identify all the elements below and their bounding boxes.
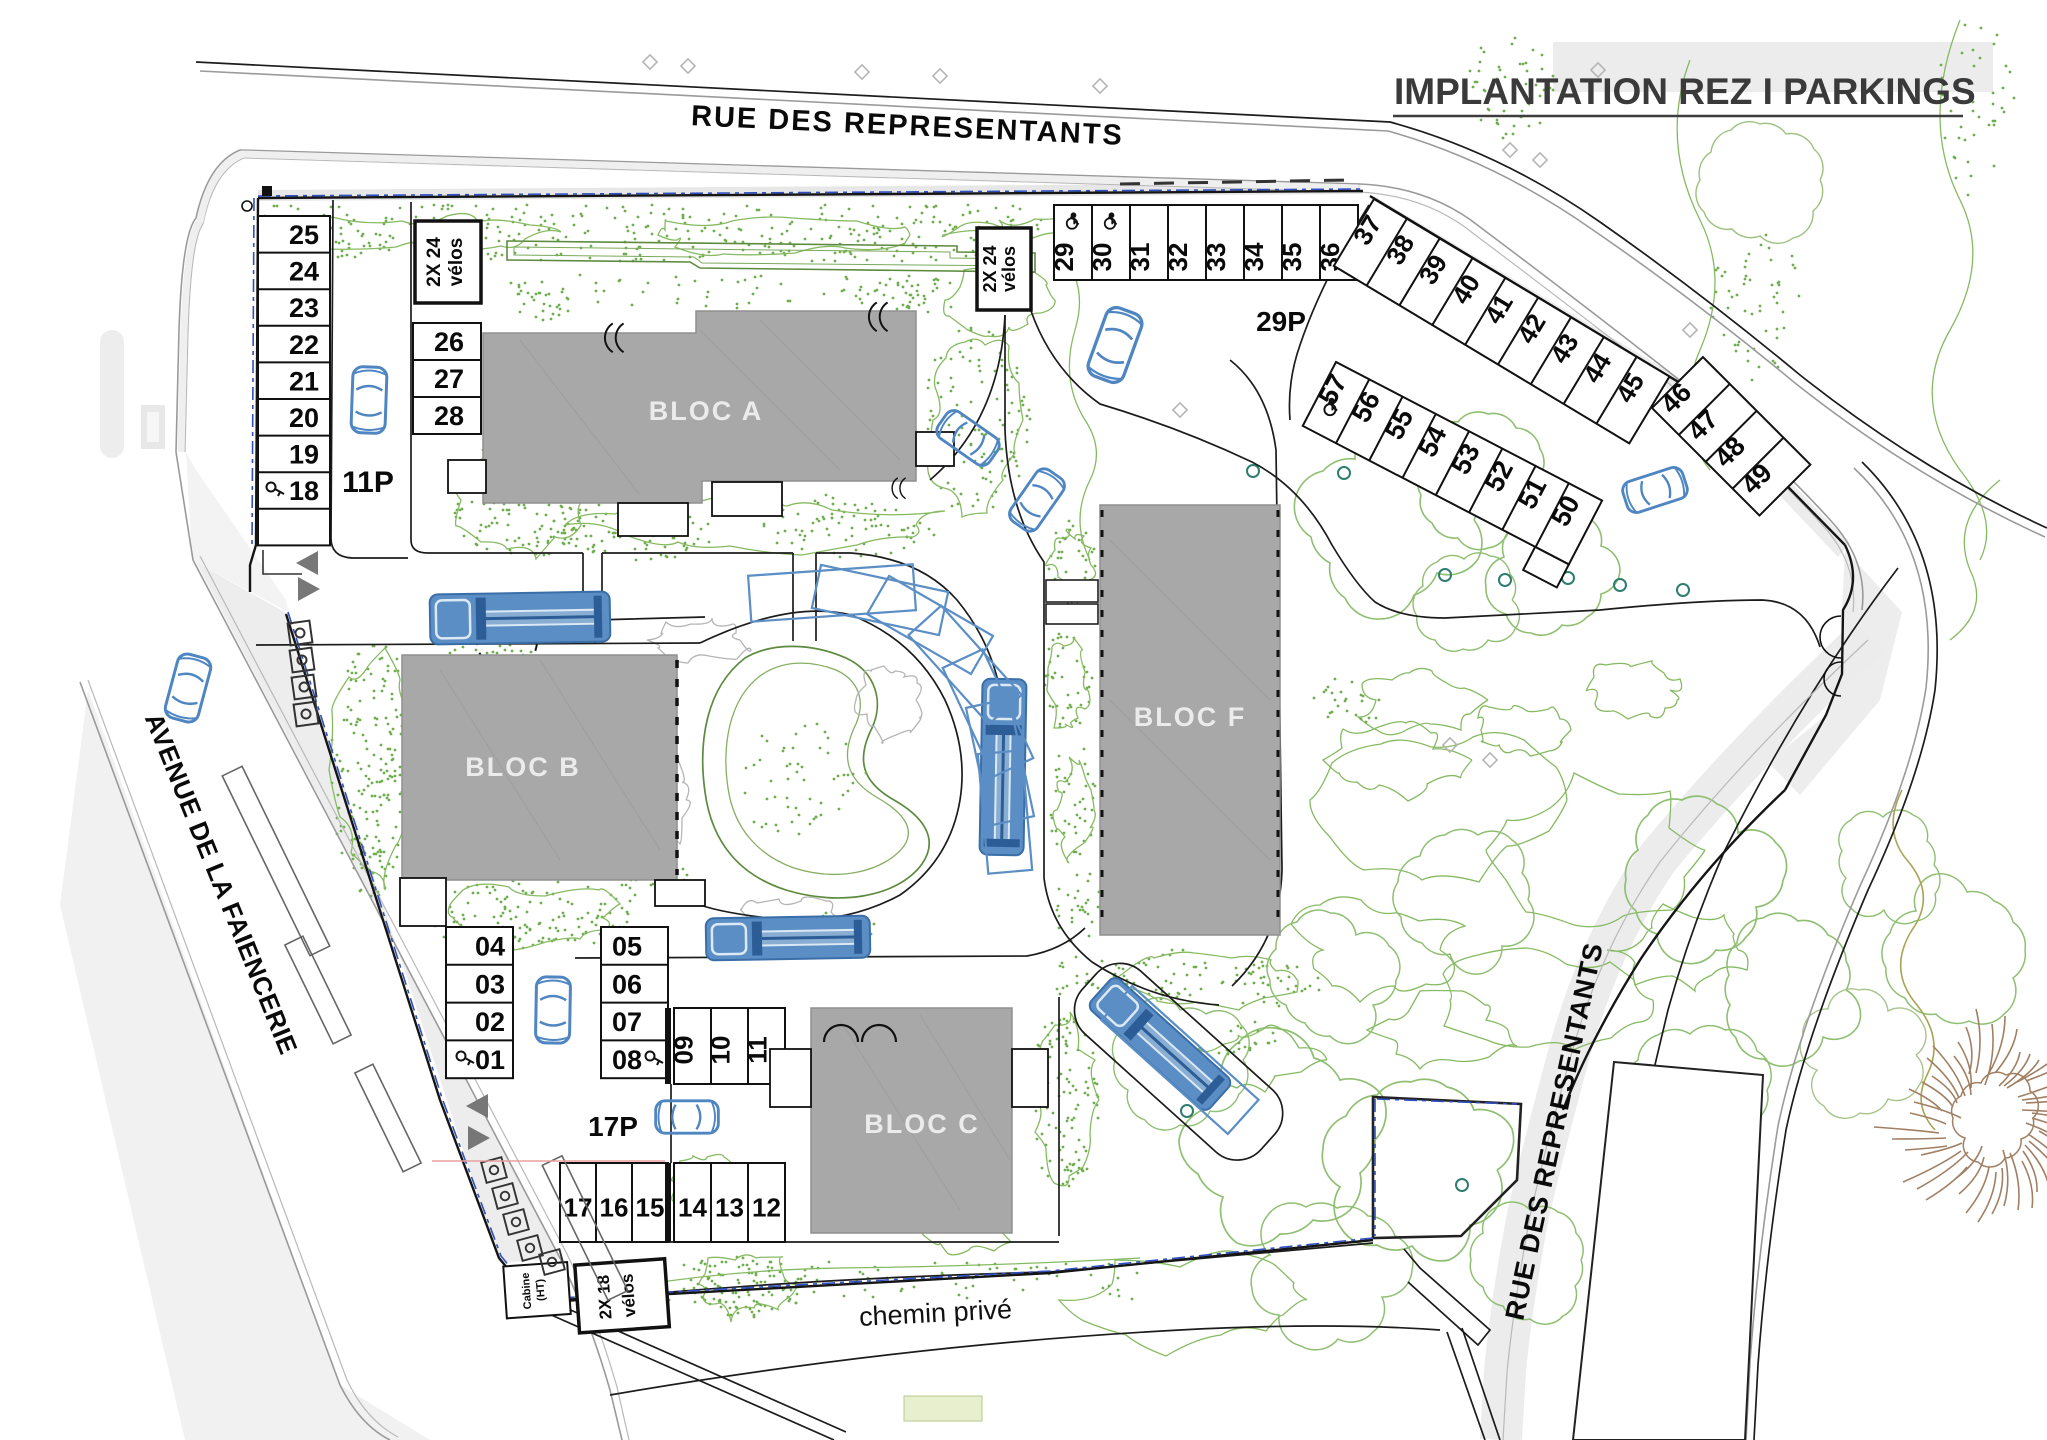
svg-text:2X 18: 2X 18 (594, 1274, 616, 1320)
svg-text:11P: 11P (342, 466, 394, 499)
svg-text:BLOC F: BLOC F (1134, 702, 1247, 732)
svg-text:33: 33 (1201, 243, 1231, 272)
svg-text:01: 01 (475, 1045, 505, 1075)
svg-text:10: 10 (706, 1036, 736, 1065)
svg-text:vélos: vélos (446, 238, 467, 287)
svg-text:32: 32 (1163, 243, 1193, 272)
svg-text:13: 13 (715, 1192, 744, 1222)
svg-text:15: 15 (636, 1192, 665, 1222)
svg-text:BLOC B: BLOC B (465, 752, 581, 782)
svg-text:23: 23 (289, 293, 319, 323)
svg-text:12: 12 (752, 1192, 781, 1222)
svg-text:08: 08 (612, 1045, 642, 1075)
svg-text:03: 03 (475, 969, 505, 999)
svg-text:27: 27 (434, 364, 464, 394)
svg-text:vélos: vélos (618, 1273, 640, 1318)
svg-text:IMPLANTATION REZ I PARKINGS: IMPLANTATION REZ I PARKINGS (1394, 71, 1976, 112)
svg-text:06: 06 (612, 969, 642, 999)
svg-text:31: 31 (1125, 243, 1155, 272)
svg-text:16: 16 (600, 1192, 629, 1222)
svg-text:(HT): (HT) (534, 1278, 548, 1301)
svg-text:vélos: vélos (999, 246, 1019, 292)
svg-text:21: 21 (289, 366, 319, 396)
svg-text:26: 26 (434, 327, 464, 357)
svg-text:BLOC A: BLOC A (649, 396, 764, 426)
svg-text:07: 07 (612, 1007, 642, 1037)
svg-text:11: 11 (743, 1036, 773, 1064)
svg-text:29: 29 (1049, 243, 1079, 272)
svg-text:2X 24: 2X 24 (980, 245, 1000, 292)
svg-text:35: 35 (1277, 243, 1307, 272)
svg-text:04: 04 (475, 932, 505, 962)
svg-text:17P: 17P (588, 1111, 638, 1142)
svg-text:18: 18 (289, 476, 319, 506)
svg-text:24: 24 (289, 257, 319, 287)
svg-text:22: 22 (289, 330, 319, 360)
svg-text:BLOC C: BLOC C (864, 1109, 980, 1139)
svg-text:09: 09 (669, 1036, 699, 1065)
svg-text:30: 30 (1087, 243, 1117, 272)
svg-text:19: 19 (289, 440, 319, 470)
svg-text:02: 02 (475, 1007, 505, 1037)
svg-text:34: 34 (1239, 242, 1269, 271)
svg-text:2X 24: 2X 24 (424, 237, 445, 287)
svg-text:28: 28 (434, 401, 464, 431)
svg-text:20: 20 (289, 403, 319, 433)
svg-text:29P: 29P (1256, 306, 1306, 337)
svg-text:14: 14 (678, 1192, 707, 1222)
svg-text:25: 25 (289, 220, 319, 250)
svg-text:Cabine: Cabine (520, 1272, 535, 1309)
svg-text:05: 05 (612, 932, 642, 962)
